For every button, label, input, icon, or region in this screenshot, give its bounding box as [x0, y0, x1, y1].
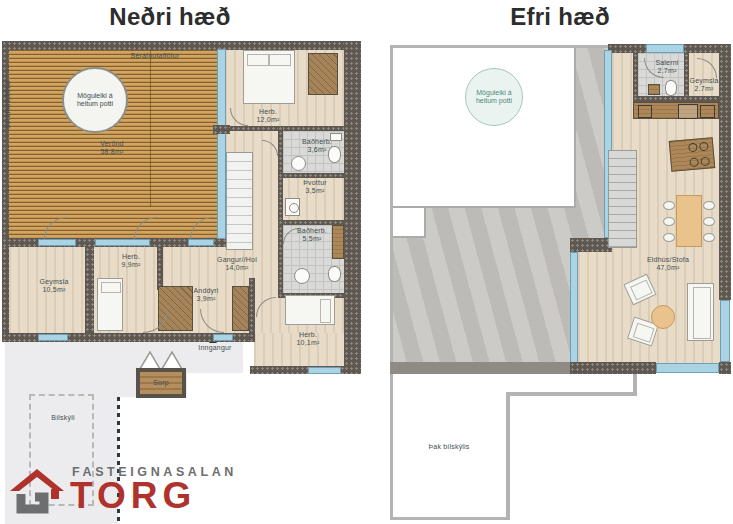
wall [570, 238, 612, 252]
entrance-door-glass [213, 334, 233, 341]
room-label-herb101: Herb.10,1m² [278, 331, 338, 346]
room-label-gangur: Gangur//Hol14,0m² [197, 256, 277, 271]
room-label-anddyri: Anddyri3,9m² [176, 287, 236, 302]
wall [2, 41, 361, 50]
washer-icon [285, 198, 300, 216]
hot-tub-circle-upper: Möguleiki áheitum potti [465, 68, 523, 126]
entrance-label: Inngangur [180, 344, 250, 352]
window [188, 239, 214, 246]
wall [719, 362, 731, 374]
wardrobe [308, 53, 338, 95]
room-label-eldhus: Eldhús/Stofa47,0m² [628, 256, 708, 271]
chair [703, 233, 715, 242]
window [38, 239, 76, 246]
wall [85, 247, 94, 333]
waste-shed: Sorp [136, 368, 186, 398]
sink-cabinet [648, 84, 660, 95]
carport-label: Bílskýli [28, 414, 98, 422]
waste-shed-label: Sorp [153, 379, 169, 387]
torg-house-icon [8, 467, 66, 517]
window [38, 334, 68, 341]
room-label-geymsla-upper: Geymsla2.7m² [676, 77, 732, 92]
floorplan-stage: Neðri hæð Efri hæð Bílskýli Sorp Inngang… [0, 0, 733, 524]
single-bed [97, 278, 123, 331]
shower-icon [291, 156, 306, 171]
toilet-icon [328, 266, 341, 282]
window [95, 239, 150, 246]
roof-edge-line [506, 392, 510, 518]
chair [703, 201, 715, 210]
upper-floor-surface [578, 252, 612, 363]
window [656, 363, 719, 373]
wall [344, 41, 361, 374]
staircase-lower [226, 152, 253, 250]
chair [703, 217, 715, 226]
bike-stand-icon [138, 350, 184, 369]
deck-glass-wall [217, 49, 226, 239]
staircase-upper [608, 150, 637, 248]
wall [213, 125, 230, 134]
room-label-geymsla: Geymsla10,5m² [24, 278, 84, 293]
logo-text-main: TORG [70, 478, 196, 514]
double-bed [243, 50, 295, 104]
lower-floor-title: Neðri hæð [35, 3, 305, 31]
carport-roof-label: Þak bílskýlis [409, 443, 489, 451]
deck-exclusive-area-label-side: Séráfnotaflötur [4, 60, 12, 150]
window [720, 300, 730, 362]
window [646, 44, 684, 53]
upper-terrace-open-area [393, 208, 426, 238]
wall [249, 278, 255, 342]
room-label-herb12: Herb.12,0m² [238, 108, 298, 123]
roof-edge-line [506, 392, 637, 396]
chair [663, 233, 675, 242]
room-label-salerni: Salerni2.7m² [637, 59, 697, 74]
chair [663, 217, 675, 226]
hot-tub-circle: Möguleiki áheitum potti [62, 67, 128, 133]
kitchen-counter [633, 102, 719, 119]
single-bed [285, 295, 335, 325]
room-label-bad55: Baðherb.5,5m² [282, 227, 342, 242]
wall [278, 173, 344, 178]
upper-floor-title: Efri hæð [425, 3, 695, 31]
room-label-thvottur: Þvottur3,5m² [285, 179, 345, 194]
chair [663, 201, 675, 210]
room-label-bad36: Baðherb.3,6m² [287, 138, 347, 153]
shower-icon [294, 268, 310, 284]
deck-seam [150, 47, 151, 207]
room-label-herb99: Herb.9,9m² [101, 253, 161, 268]
kitchen-island [669, 137, 716, 172]
window [308, 367, 341, 374]
sofa [687, 283, 714, 341]
deck-exclusive-area-label: Séráfnotaflötur [110, 52, 200, 60]
glass-wall [570, 252, 578, 363]
wall [226, 126, 344, 131]
roof-boundary [390, 517, 510, 520]
wall [278, 126, 283, 297]
terrace-bottom-wall [390, 362, 576, 374]
coffee-table [651, 305, 675, 329]
deck-area-label: Verönd58.8m² [82, 140, 142, 155]
dining-table [676, 195, 702, 247]
wall [570, 362, 656, 374]
